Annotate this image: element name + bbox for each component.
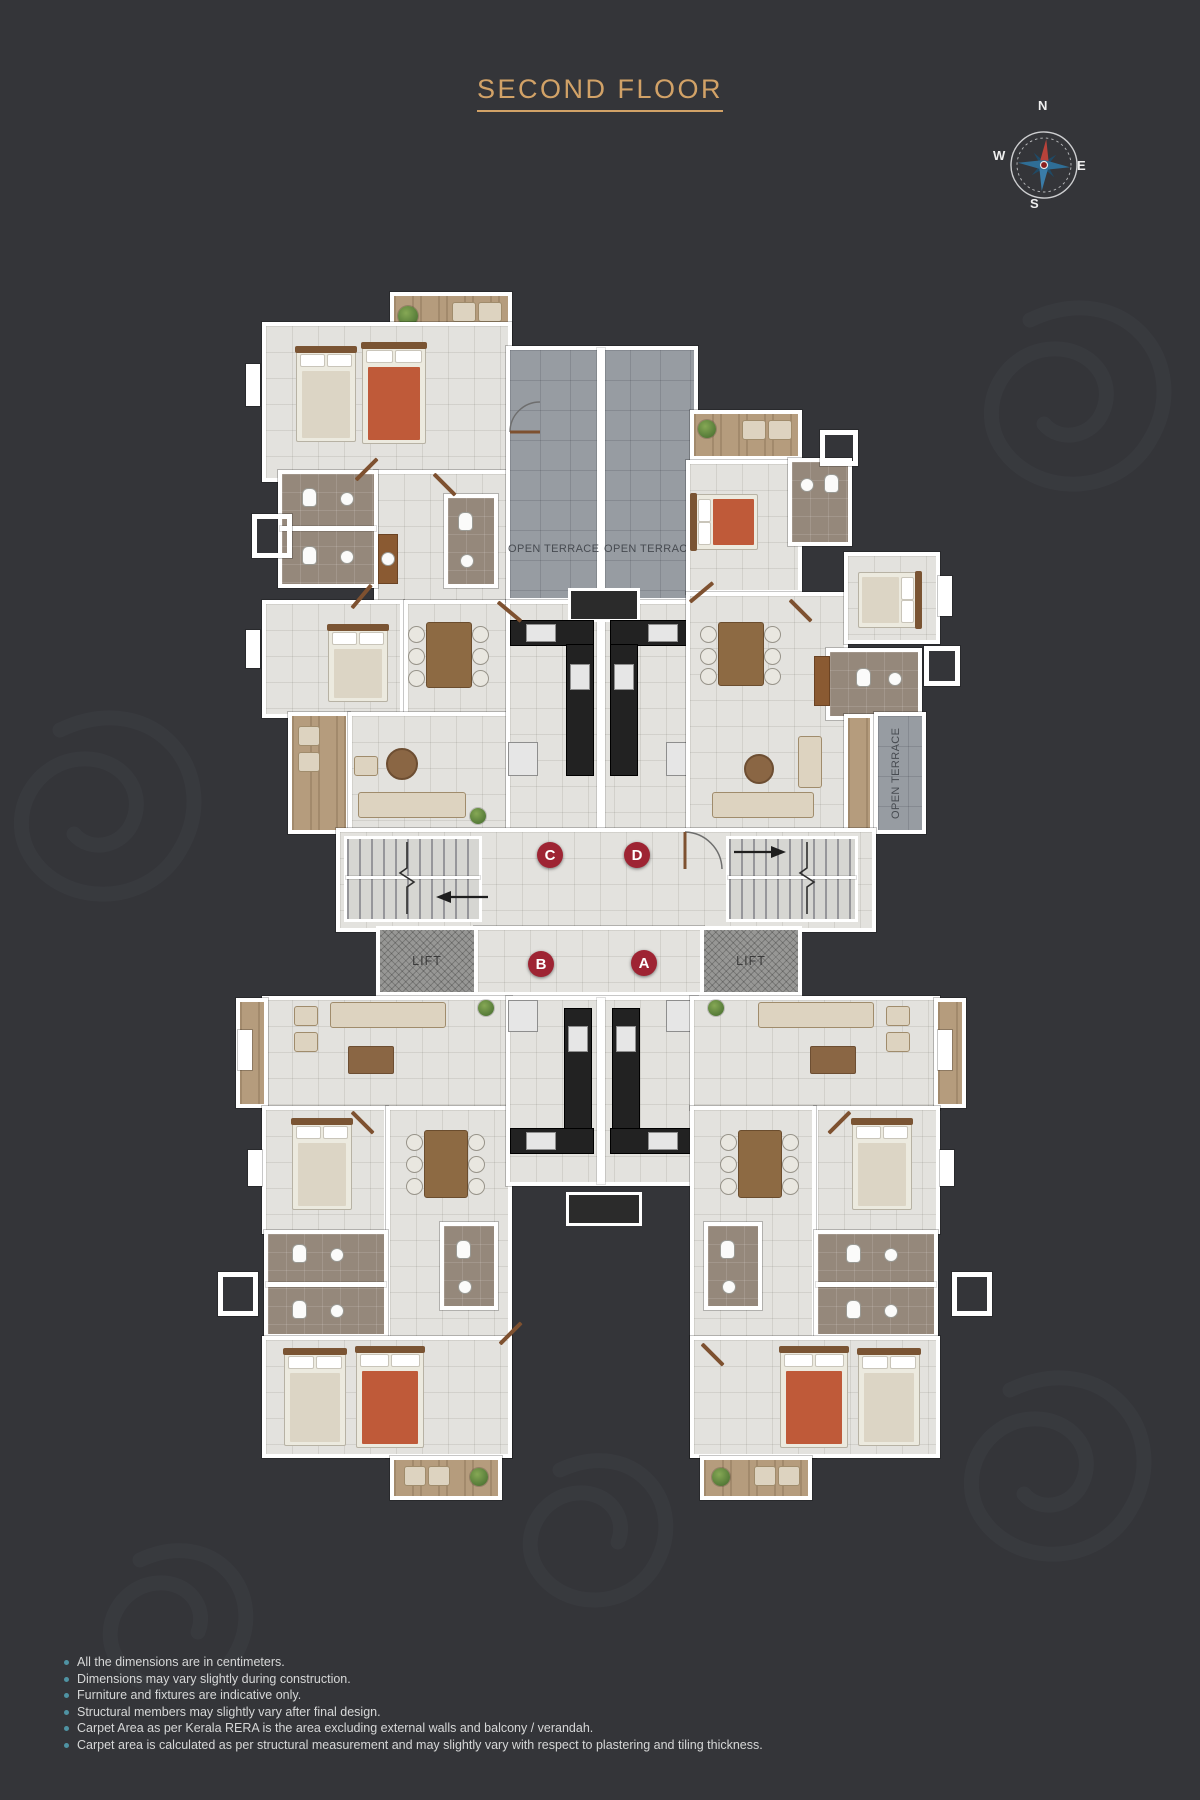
bed (292, 1122, 352, 1210)
door-arc (508, 400, 542, 434)
armchair (298, 752, 320, 772)
disclaimer-text: Dimensions may vary slightly during cons… (77, 1671, 351, 1688)
wall-window-tab (938, 1030, 952, 1070)
dining-chair (472, 626, 489, 643)
armchair (298, 726, 320, 746)
bathroom (704, 1222, 762, 1310)
dining-chair (408, 670, 425, 687)
armchair (354, 756, 378, 776)
compass-north-label: N (1038, 98, 1047, 113)
plant (478, 1000, 494, 1016)
dining-table (738, 1130, 782, 1198)
stove (570, 664, 590, 690)
dining-table (718, 622, 764, 686)
fridge (508, 742, 538, 776)
bathroom (440, 1222, 498, 1310)
disclaimer-text: Carpet area is calculated as per structu… (77, 1737, 763, 1754)
wall-divider (597, 602, 605, 834)
bullet-dot (64, 1743, 69, 1748)
toilet (292, 1244, 307, 1263)
duct-shaft (566, 1192, 642, 1226)
toilet (856, 668, 871, 687)
sofa (358, 792, 466, 818)
dining-chair (468, 1178, 485, 1195)
disclaimer-text: Carpet Area as per Kerala RERA is the ar… (77, 1720, 593, 1737)
stove (616, 1026, 636, 1052)
kitchen-sink (526, 624, 556, 642)
door-arc (682, 830, 724, 872)
stair-direction-arrow (732, 845, 786, 859)
wall-divider (597, 348, 605, 600)
dining-chair (764, 626, 781, 643)
plant (698, 420, 716, 438)
dining-chair (406, 1156, 423, 1173)
washbasin (800, 478, 814, 492)
balcony-chair (768, 420, 792, 440)
toilet (302, 546, 317, 565)
dining-chair (782, 1134, 799, 1151)
dining-chair (472, 670, 489, 687)
lift-label: LIFT (736, 954, 766, 968)
wall-window-tab (938, 576, 952, 616)
bathroom (826, 648, 922, 720)
bed (858, 1352, 920, 1446)
dining-chair (408, 626, 425, 643)
stove (614, 664, 634, 690)
duct-shaft (568, 588, 640, 622)
wall-window-tab (940, 1150, 954, 1186)
disclaimer-item: Dimensions may vary slightly during cons… (64, 1671, 763, 1688)
stair-landing (728, 876, 856, 879)
stair-break-line (798, 842, 816, 916)
armchair (886, 1006, 910, 1026)
page-title: SECOND FLOOR (477, 74, 723, 112)
washbasin (330, 1248, 344, 1262)
wall-window-tab (248, 1150, 262, 1186)
washbasin (381, 552, 395, 566)
dining-chair (408, 648, 425, 665)
armchair (294, 1032, 318, 1052)
dining-chair (700, 626, 717, 643)
coffee-table (386, 748, 418, 780)
dining-chair (782, 1156, 799, 1173)
window-box (218, 1272, 258, 1316)
dining-table (424, 1130, 468, 1198)
washbasin (458, 1280, 472, 1294)
washbasin (888, 672, 902, 686)
toilet (846, 1300, 861, 1319)
lift: LIFT (700, 926, 802, 996)
armchair (294, 1006, 318, 1026)
bed (284, 1352, 346, 1446)
vanity-counter (814, 656, 830, 706)
bed (780, 1350, 848, 1448)
unit-badge-b: B (528, 951, 554, 977)
balcony-chair (754, 1466, 776, 1486)
dining-chair (720, 1178, 737, 1195)
balcony-chair (404, 1466, 426, 1486)
wall-window-tab (246, 364, 260, 406)
unit-badge-c: C (537, 842, 563, 868)
open-terrace-label: OPEN TERRACE (508, 543, 598, 555)
unit-badge-d: D (624, 842, 650, 868)
balcony-chair (778, 1466, 800, 1486)
disclaimer-item: Carpet area is calculated as per structu… (64, 1737, 763, 1754)
disclaimer-text: All the dimensions are in centimeters. (77, 1654, 285, 1671)
window-box (952, 1272, 992, 1316)
disclaimer-text: Furniture and fixtures are indicative on… (77, 1687, 301, 1704)
washbasin (340, 550, 354, 564)
sofa (758, 1002, 874, 1028)
toilet (458, 512, 473, 531)
washbasin (460, 554, 474, 568)
disclaimer-item: Structural members may slightly vary aft… (64, 1704, 763, 1721)
dining-chair (472, 648, 489, 665)
balcony-chair (428, 1466, 450, 1486)
compass-east-label: E (1077, 158, 1086, 173)
bed (296, 350, 356, 442)
washbasin (340, 492, 354, 506)
disclaimer-item: Carpet Area as per Kerala RERA is the ar… (64, 1720, 763, 1737)
lift-label: LIFT (412, 954, 442, 968)
bed (694, 494, 758, 550)
bullet-dot (64, 1660, 69, 1665)
toilet (720, 1240, 735, 1259)
wall-window-tab (246, 630, 260, 668)
plant (470, 808, 486, 824)
dining-chair (700, 668, 717, 685)
disclaimer-text: Structural members may slightly vary aft… (77, 1704, 381, 1721)
dining-chair (720, 1156, 737, 1173)
dining-chair (764, 648, 781, 665)
bathroom (788, 458, 852, 546)
compass-west-label: W (993, 148, 1005, 163)
wall-divider (266, 1282, 386, 1287)
dining-chair (406, 1178, 423, 1195)
toilet (292, 1300, 307, 1319)
stair-direction-arrow (436, 890, 490, 904)
armchair (886, 1032, 910, 1052)
coffee-table (744, 754, 774, 784)
toilet (846, 1244, 861, 1263)
plant (712, 1468, 730, 1486)
open-terrace-label: OPEN TERRACE (890, 722, 902, 824)
open-terrace-label: OPEN TERRACE (604, 543, 694, 555)
bullet-dot (64, 1726, 69, 1731)
bullet-dot (64, 1677, 69, 1682)
wall-divider (816, 1282, 936, 1287)
washbasin (884, 1304, 898, 1318)
bed (858, 572, 918, 628)
dining-table (426, 622, 472, 688)
fridge (508, 1000, 538, 1032)
kitchen-sink (648, 624, 678, 642)
sofa (330, 1002, 446, 1028)
kitchen-sink (648, 1132, 678, 1150)
washbasin (330, 1304, 344, 1318)
dining-chair (468, 1134, 485, 1151)
coffee-table (348, 1046, 394, 1074)
wall-divider (597, 998, 605, 1184)
brochure-page: SECOND FLOOR N W E S (0, 0, 1200, 1800)
washbasin (722, 1280, 736, 1294)
balcony-chair (742, 420, 766, 440)
lift-lobby (474, 926, 704, 996)
disclaimer-item: All the dimensions are in centimeters. (64, 1654, 763, 1671)
balcony-chair (452, 302, 476, 322)
toilet (456, 1240, 471, 1259)
bed (328, 628, 388, 702)
toilet (302, 488, 317, 507)
wall-divider (280, 526, 376, 531)
window-box (820, 430, 858, 466)
bed (356, 1350, 424, 1448)
compass-south-label: S (1030, 196, 1039, 211)
dining-chair (720, 1134, 737, 1151)
window-box (924, 646, 960, 686)
bullet-dot (64, 1693, 69, 1698)
window-box (252, 514, 292, 558)
plant (470, 1468, 488, 1486)
sofa (798, 736, 822, 788)
balcony-chair (478, 302, 502, 322)
disclaimer-item: Furniture and fixtures are indicative on… (64, 1687, 763, 1704)
bed (362, 346, 426, 444)
unit-badge-a: A (631, 950, 657, 976)
lift: LIFT (376, 926, 478, 996)
stair-break-line (398, 842, 416, 916)
dining-chair (700, 648, 717, 665)
disclaimer-list: All the dimensions are in centimeters. D… (64, 1654, 763, 1753)
plant (708, 1000, 724, 1016)
dining-chair (782, 1178, 799, 1195)
bed (852, 1122, 912, 1210)
dining-chair (764, 668, 781, 685)
wall-window-tab (238, 1030, 252, 1070)
dining-chair (406, 1134, 423, 1151)
toilet (824, 474, 839, 493)
dining-chair (468, 1156, 485, 1173)
bullet-dot (64, 1710, 69, 1715)
coffee-table (810, 1046, 856, 1074)
kitchen-sink (526, 1132, 556, 1150)
balcony (844, 714, 874, 834)
sofa (712, 792, 814, 818)
stove (568, 1026, 588, 1052)
bathroom (444, 494, 498, 588)
washbasin (884, 1248, 898, 1262)
